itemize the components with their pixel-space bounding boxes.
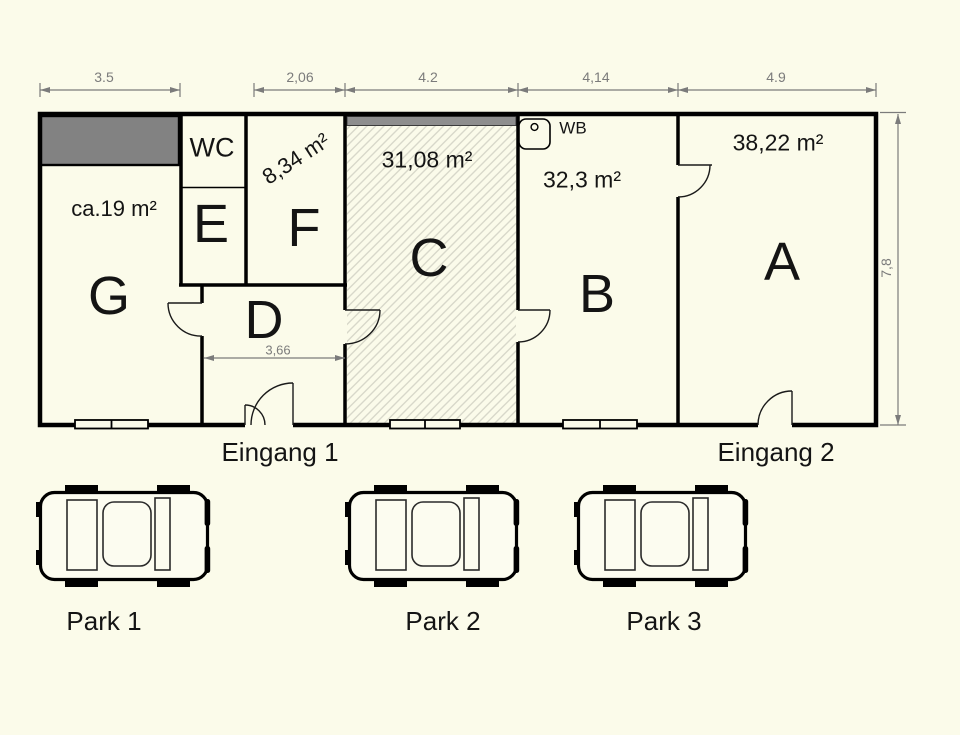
entrance2-opening [758,421,792,430]
car-icon-park2 [345,485,519,587]
washbasin-icon [519,119,550,149]
room-c-label: C [410,231,449,285]
dim-top-4: 4,14 [582,70,609,84]
room-f-label: F [288,201,321,255]
door-c-b [518,310,550,342]
entrance1-opening [245,421,293,430]
room-e-label: E [193,197,229,251]
washbasin-label: WB [559,120,586,137]
door-entrance1-double [245,383,293,425]
room-b-area: 32,3 m² [543,169,621,192]
room-g-label: G [88,269,130,323]
room-g-gray-strip [40,116,179,165]
dim-top-5: 4.9 [766,70,785,84]
door-b-a [678,165,712,197]
parking-spot-3-label: Park 3 [626,608,701,634]
room-wc-label: WC [190,135,235,162]
dim-top-1: 3.5 [94,70,113,84]
floor-plan-canvas: 3.5 2,06 4.2 4,14 4.9 7,8 3,66 ca.19 m² … [0,0,960,735]
door-g-d [168,303,202,336]
dim-right: 7,8 [879,258,893,277]
room-a-area: 38,22 m² [733,132,824,155]
parking-spot-2-label: Park 2 [405,608,480,634]
room-g-area: ca.19 m² [71,198,157,220]
dim-top-2: 2,06 [286,70,313,84]
room-c-gray-strip [347,117,516,126]
room-d-label: D [245,293,284,347]
car-icon-park3 [574,485,748,587]
room-a-label: A [764,235,800,289]
car-icon-park1 [36,485,210,587]
room-c-area: 31,08 m² [382,149,473,172]
entrance2-label: Eingang 2 [717,439,834,465]
room-b-label: B [579,267,615,321]
parking-spot-1-label: Park 1 [66,608,141,634]
entrance1-label: Eingang 1 [221,439,338,465]
door-entrance2 [758,391,792,425]
dim-top-3: 4.2 [418,70,437,84]
